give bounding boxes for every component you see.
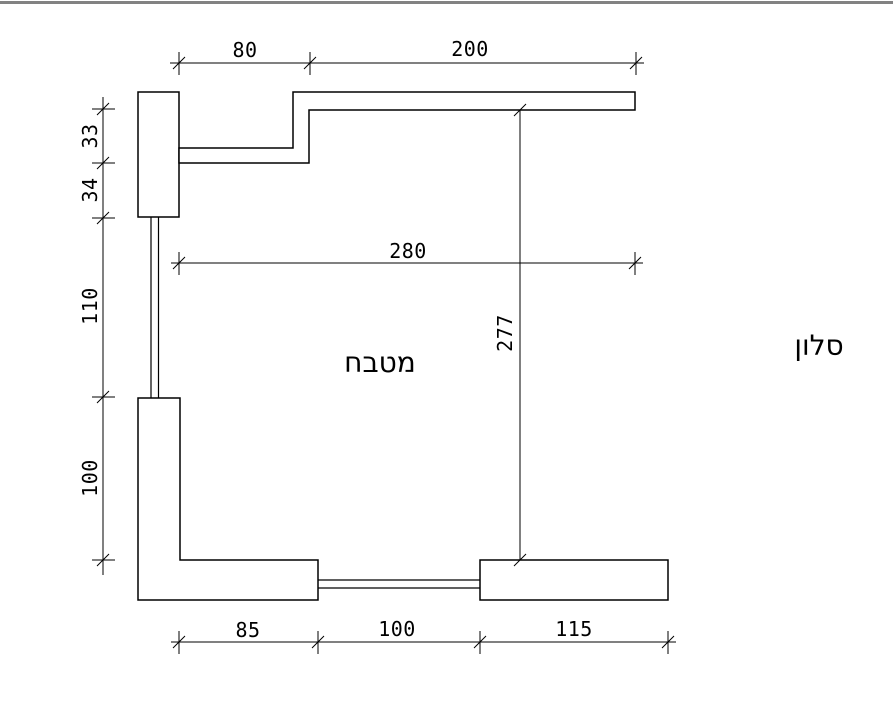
dim-label-280: 280 — [389, 239, 427, 263]
dim-label-left-34: 34 — [78, 177, 102, 202]
wall-top-stepped — [179, 92, 635, 163]
window-left — [151, 217, 159, 398]
dim-label-bottom-100: 100 — [378, 617, 416, 641]
dim-overall-width: 280 — [171, 239, 643, 275]
dim-label-top-80: 80 — [232, 38, 257, 62]
dim-label-bottom-85: 85 — [235, 618, 260, 642]
dim-label-277: 277 — [493, 314, 517, 352]
floor-plan-canvas: 80 200 33 34 110 100 — [0, 0, 893, 714]
top-rule — [0, 1, 893, 4]
dim-label-left-100: 100 — [78, 459, 102, 497]
dim-chain-top: 80 200 — [170, 37, 644, 75]
dim-label-bottom-115: 115 — [555, 617, 593, 641]
wall-top-left-pier — [138, 92, 179, 217]
dim-label-left-33: 33 — [78, 123, 102, 148]
dim-overall-height: 277 — [493, 104, 532, 566]
dim-label-top-200: 200 — [451, 37, 489, 61]
wall-bottom-right — [480, 560, 668, 600]
floor-plan-drawing: 80 200 33 34 110 100 — [0, 0, 893, 714]
window-bottom — [318, 580, 480, 588]
room-label-kitchen: מטבח — [344, 346, 416, 379]
dim-label-left-110: 110 — [78, 287, 102, 325]
dim-chain-bottom: 85 100 115 — [171, 617, 676, 654]
windows — [151, 217, 480, 588]
room-label-living-room: סלון — [794, 329, 843, 362]
wall-bottom-left-l — [138, 398, 318, 600]
dim-chain-left: 33 34 110 100 — [78, 97, 115, 575]
